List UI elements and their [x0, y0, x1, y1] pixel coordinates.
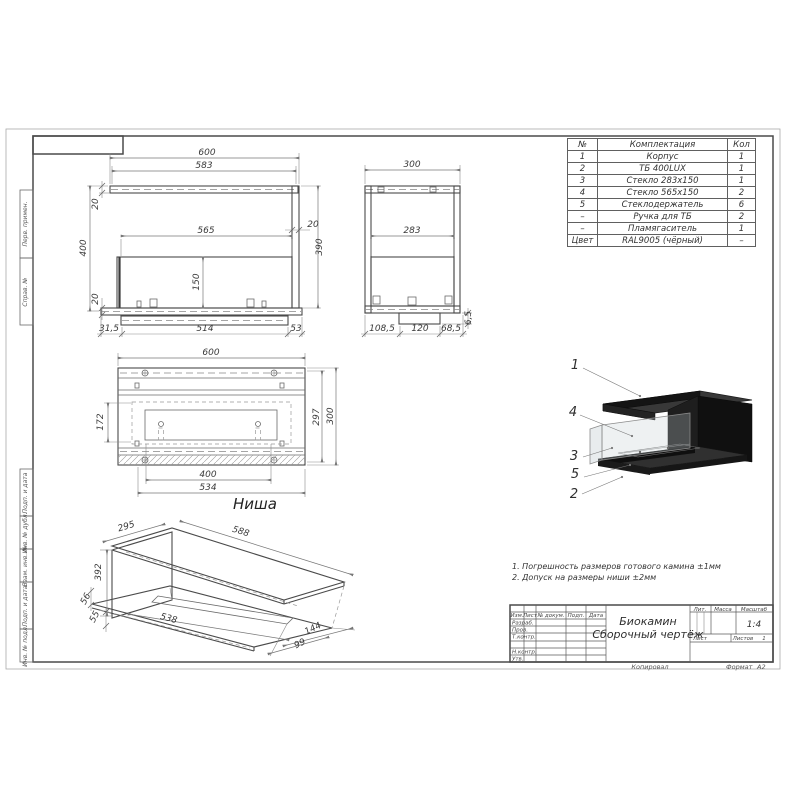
callout-1: 1 — [571, 358, 579, 373]
margin-label-inv-podl: Инв. № подл. — [22, 625, 29, 666]
parts-table-cell: ТБ 400LUX — [598, 163, 728, 175]
drawing-canvas: 60058340020565203901502031,5514533002836… — [0, 0, 800, 800]
dim-label-s65: 6,5 — [464, 311, 474, 326]
callout-4: 4 — [569, 405, 577, 420]
dim-label-f600: 600 — [198, 148, 215, 158]
dim-label-f20t: 20 — [91, 198, 101, 210]
parts-table-row: 1Корпус1 — [568, 151, 756, 163]
dim-label-f400: 400 — [79, 239, 89, 256]
tb-mass-label: Масса — [714, 607, 732, 613]
tb-sheet-label: Лист — [692, 636, 708, 642]
parts-table-header-row: №КомплектацияКол — [568, 139, 756, 151]
parts-table-cell: 6 — [728, 199, 756, 211]
dim-label-f565: 565 — [197, 226, 214, 236]
tb-row-razrab: Разраб. — [512, 621, 534, 627]
tb-sheets-label: Листов — [732, 636, 754, 642]
front-view — [87, 153, 321, 337]
tb-row-tkontr: Т.контр. — [512, 635, 536, 641]
tb-col-izm: Изм. — [511, 613, 524, 619]
parts-table-cell: Корпус — [598, 151, 728, 163]
drawing-page: { "sheet": { "copied_label": "Копировал"… — [0, 0, 800, 800]
dim-label-f583: 583 — [195, 161, 212, 171]
parts-table-cell: 2 — [728, 187, 756, 199]
parts-table-row: ЦветRAL9005 (чёрный)– — [568, 235, 756, 247]
tb-scale-value: 1:4 — [747, 620, 762, 630]
dim-label-n538: 538 — [159, 612, 178, 626]
doc-title-line1: Биокамин — [619, 615, 676, 628]
parts-table-row: 2ТБ 400LUX1 — [568, 163, 756, 175]
callout-2: 2 — [570, 487, 578, 502]
note-1: 1. Погрешность размеров готового камина … — [512, 562, 721, 571]
dim-label-f150: 150 — [192, 273, 202, 290]
parts-table-cell: 1 — [728, 151, 756, 163]
parts-table-cell: – — [568, 211, 598, 223]
dim-label-n392: 392 — [94, 563, 104, 580]
parts-table-row: 4Стекло 565х1502 — [568, 187, 756, 199]
dim-label-n588: 588 — [231, 525, 251, 540]
parts-table-cell: RAL9005 (чёрный) — [598, 235, 728, 247]
dim-label-f390: 390 — [315, 238, 325, 255]
parts-table-cell: 3 — [568, 175, 598, 187]
plan-view-niche — [104, 353, 339, 497]
tb-col-data: Дата — [588, 613, 604, 619]
parts-table-header-cell: Кол — [728, 139, 756, 151]
dim-label-n144: 144 — [303, 621, 323, 638]
parts-table-cell: 2 — [728, 211, 756, 223]
dim-label-s120: 120 — [411, 324, 428, 334]
parts-table-cell: 1 — [568, 151, 598, 163]
parts-table-row: 3Стекло 283х1501 — [568, 175, 756, 187]
parts-table-cell: Стекло 283х150 — [598, 175, 728, 187]
parts-table-cell: Цвет — [568, 235, 598, 247]
parts-table-cell: 2 — [568, 163, 598, 175]
parts-table: №КомплектацияКол1Корпус12ТБ 400LUX13Стек… — [567, 138, 756, 247]
parts-table-header-cell: № — [568, 139, 598, 151]
format-value: А2 — [757, 663, 766, 671]
dim-label-p600: 600 — [202, 348, 219, 358]
parts-table-cell: Стеклодержатель — [598, 199, 728, 211]
side-view — [361, 165, 472, 337]
niche-3d-view — [88, 521, 355, 656]
parts-table-cell: 1 — [728, 163, 756, 175]
parts-table-cell: 5 — [568, 199, 598, 211]
dim-label-s1085: 108,5 — [369, 324, 395, 334]
dim-label-f20r: 20 — [307, 220, 319, 230]
tb-row-prov: Пров. — [512, 628, 528, 634]
dim-label-p300: 300 — [326, 407, 336, 424]
parts-table-header-cell: Комплектация — [598, 139, 728, 151]
parts-table-cell: Стекло 565х150 — [598, 187, 728, 199]
parts-table-cell: – — [728, 235, 756, 247]
dim-label-p400: 400 — [199, 470, 216, 480]
tb-col-ndoc: № докум. — [536, 613, 564, 619]
parts-table-cell: Ручка для ТБ — [598, 211, 728, 223]
dim-label-p172: 172 — [96, 413, 106, 430]
note-2: 2. Допуск на размеры ниши ±2мм — [512, 573, 656, 582]
parts-table-cell: 1 — [728, 223, 756, 235]
dim-label-p297: 297 — [312, 408, 322, 425]
dim-label-s685: 68,5 — [441, 324, 461, 334]
tb-sheets-value: 1 — [762, 636, 766, 642]
dim-label-p534: 534 — [199, 483, 216, 493]
margin-label-vzam-inv: Взам. инв. № — [22, 546, 29, 587]
parts-table-cell: Пламягаситель — [598, 223, 728, 235]
tb-lit-label: Лит. — [693, 607, 707, 613]
dim-label-f514: 514 — [196, 324, 213, 334]
dim-label-n99: 99 — [293, 637, 308, 651]
callout-5: 5 — [571, 467, 579, 482]
format-label: Формат — [726, 663, 752, 671]
dim-label-f315: 31,5 — [99, 324, 119, 334]
callout-3: 3 — [570, 449, 578, 464]
doc-title-line2: Сборочный чертёж — [592, 628, 703, 641]
parts-table-cell: 4 — [568, 187, 598, 199]
dim-label-s283: 283 — [403, 226, 420, 236]
tb-scale-label: Масштаб — [741, 607, 768, 613]
margin-label-perv-primen: Перв. примен. — [22, 201, 29, 246]
tb-col-podp: Подп. — [568, 613, 585, 619]
margin-label-podp-data-2: Подп. и дата — [22, 585, 29, 626]
parts-table-row: –Ручка для ТБ2 — [568, 211, 756, 223]
dim-label-s300: 300 — [403, 160, 420, 170]
dim-label-n295: 295 — [117, 520, 137, 535]
parts-table-row: 5Стеклодержатель6 — [568, 199, 756, 211]
dim-label-n55: 55 — [88, 609, 102, 624]
parts-table-cell: 1 — [728, 175, 756, 187]
tb-row-nkontr: Н.контр. — [512, 650, 537, 656]
dim-label-f53: 53 — [290, 324, 302, 334]
parts-table-cell: – — [568, 223, 598, 235]
dim-label-f20b: 20 — [91, 293, 101, 305]
niche-view-label: Ниша — [218, 495, 292, 513]
parts-table-body: №КомплектацияКол1Корпус12ТБ 400LUX13Стек… — [568, 139, 756, 247]
top-left-designation-box — [33, 136, 123, 154]
tb-row-utv: Утв. — [512, 657, 524, 663]
tb-col-list: Лист — [522, 613, 538, 619]
parts-table-row: –Пламягаситель1 — [568, 223, 756, 235]
copied-label: Копировал — [615, 663, 685, 671]
margin-label-podp-data-1: Подп. и дата — [22, 472, 29, 513]
fireplace-3d-render — [580, 368, 752, 494]
margin-label-sprav-no: Справ. № — [22, 277, 29, 306]
